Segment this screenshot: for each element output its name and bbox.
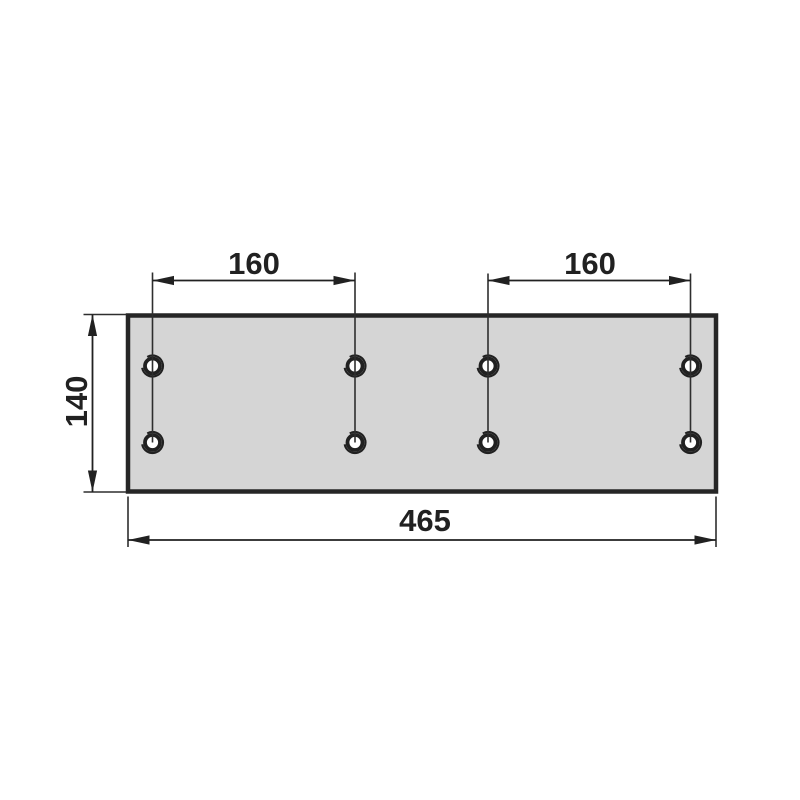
dim-arrow-right bbox=[695, 535, 717, 544]
dimension-left: 140 bbox=[59, 315, 127, 493]
dimension-label: 140 bbox=[59, 376, 94, 428]
dim-arrow-left bbox=[488, 276, 510, 285]
dimension-bottom: 465 bbox=[128, 497, 716, 548]
dim-arrow-right bbox=[334, 276, 356, 285]
dim-arrow-right bbox=[669, 276, 691, 285]
plate-outline bbox=[128, 316, 716, 492]
drawing-canvas: 160 160 140 465 bbox=[0, 0, 800, 800]
dim-arrow-left bbox=[128, 535, 150, 544]
dim-arrow-left bbox=[153, 276, 175, 285]
dimension-top-left: 160 bbox=[153, 246, 356, 285]
dimension-label: 160 bbox=[228, 246, 280, 281]
dimension-label: 465 bbox=[399, 503, 451, 538]
technical-drawing: 160 160 140 465 bbox=[0, 0, 800, 800]
dimension-label: 160 bbox=[564, 246, 616, 281]
dim-arrow-down bbox=[88, 471, 97, 493]
dim-arrow-up bbox=[88, 315, 97, 337]
dimension-top-right: 160 bbox=[488, 246, 691, 285]
